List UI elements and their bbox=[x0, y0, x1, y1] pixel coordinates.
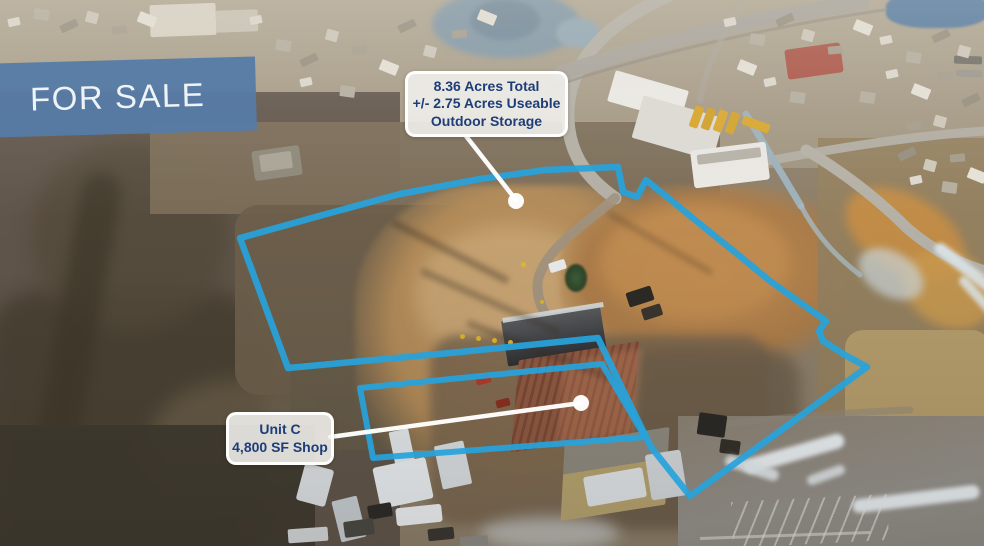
photo-blob bbox=[645, 449, 688, 500]
photo-blob bbox=[339, 85, 355, 98]
photo-blob bbox=[954, 56, 982, 65]
photo-blob bbox=[390, 219, 509, 284]
acreage-line2: +/- 2.75 Acres Useable bbox=[408, 95, 565, 112]
listing-marketing-image: FOR SALE 8.36 Acres Total +/- 2.75 Acres… bbox=[0, 0, 984, 546]
photo-blob bbox=[299, 53, 319, 68]
photo-blob bbox=[7, 17, 20, 27]
photo-blob bbox=[789, 91, 805, 104]
photo-blob bbox=[355, 185, 695, 495]
photo-blob bbox=[325, 29, 339, 43]
photo-blob bbox=[367, 502, 393, 520]
unit-c-outline bbox=[360, 364, 645, 458]
photo-blob bbox=[724, 454, 781, 483]
photo-blob bbox=[372, 457, 434, 509]
photo-blob bbox=[742, 432, 846, 475]
photo-blob bbox=[540, 300, 544, 304]
photo-blob bbox=[784, 42, 844, 80]
photo-blob bbox=[420, 268, 560, 335]
photo-blob bbox=[830, 169, 981, 300]
photo-blob bbox=[931, 29, 951, 44]
photo-blob bbox=[678, 416, 984, 546]
photo-blob bbox=[713, 109, 729, 133]
photo-blob bbox=[701, 107, 717, 131]
acreage-line3: Outdoor Storage bbox=[408, 113, 565, 130]
photo-blob bbox=[941, 181, 957, 194]
photo-blob bbox=[909, 175, 922, 185]
photo-blob bbox=[477, 9, 498, 26]
photo-blob bbox=[137, 11, 158, 28]
photo-blob bbox=[249, 15, 262, 25]
acreage-callout: 8.36 Acres Total +/- 2.75 Acres Useable … bbox=[405, 71, 568, 137]
photo-blob bbox=[828, 45, 844, 54]
photo-blob bbox=[427, 527, 454, 542]
photo-blob bbox=[607, 210, 714, 275]
photo-blob bbox=[251, 145, 303, 181]
for-sale-banner: FOR SALE bbox=[0, 56, 257, 137]
photo-blob bbox=[352, 45, 368, 54]
photo-blob bbox=[331, 495, 366, 542]
photo-blob bbox=[805, 463, 846, 486]
photo-blob bbox=[938, 71, 954, 80]
photo-blob bbox=[731, 494, 889, 546]
photo-blob bbox=[501, 305, 607, 366]
photo-blob bbox=[476, 336, 481, 341]
photo-blob bbox=[26, 169, 124, 511]
photo-blob bbox=[957, 274, 984, 328]
photo-blob bbox=[859, 91, 875, 104]
photo-blob bbox=[492, 338, 497, 343]
unit-c-callout: Unit C 4,800 SF Shop bbox=[226, 412, 334, 465]
photo-blob bbox=[885, 69, 898, 79]
photo-blob bbox=[932, 240, 984, 295]
photo-blob bbox=[502, 302, 604, 323]
photo-blob bbox=[905, 51, 921, 64]
photo-blob bbox=[737, 59, 758, 76]
acreage-line1: 8.36 Acres Total bbox=[408, 78, 565, 95]
photo-blob bbox=[560, 185, 860, 365]
photo-blob bbox=[85, 11, 99, 25]
photo-blob bbox=[0, 92, 400, 546]
photo-blob bbox=[149, 3, 216, 37]
photo-blob bbox=[343, 518, 375, 538]
photo-blob bbox=[763, 77, 776, 87]
photo-blob bbox=[508, 340, 513, 345]
photo-blob bbox=[775, 13, 795, 28]
photo-blob bbox=[967, 167, 984, 184]
photo-blob bbox=[388, 428, 415, 467]
photo-blob bbox=[480, 516, 620, 546]
photo-blob bbox=[956, 70, 982, 78]
photo-blob bbox=[723, 17, 736, 27]
photo-blob bbox=[296, 463, 335, 507]
photo-blob bbox=[557, 349, 643, 446]
photo-blob bbox=[957, 45, 971, 59]
photo-blob bbox=[548, 259, 567, 274]
unit-c-leader-dot bbox=[573, 395, 589, 411]
photo-blob bbox=[511, 341, 640, 452]
photo-blob bbox=[561, 427, 670, 521]
photo-blob bbox=[690, 142, 770, 189]
photo-blob bbox=[460, 334, 465, 339]
photo-blob bbox=[632, 95, 725, 160]
photo-blob bbox=[565, 264, 587, 292]
photo-blob bbox=[434, 440, 472, 489]
photo-blob bbox=[697, 147, 762, 165]
photo-blob bbox=[933, 115, 947, 129]
photo-blob bbox=[397, 19, 417, 34]
photo-blob bbox=[923, 159, 937, 173]
photo-blob bbox=[749, 33, 765, 46]
for-sale-label: FOR SALE bbox=[30, 76, 206, 119]
photo-blob bbox=[379, 59, 400, 76]
photo-blob bbox=[697, 412, 728, 438]
photo-blob bbox=[950, 153, 966, 162]
photo-blob bbox=[395, 504, 443, 527]
photo-blob bbox=[879, 35, 892, 45]
photo-blob bbox=[59, 19, 79, 34]
photo-blob bbox=[216, 9, 259, 32]
photo-blob bbox=[475, 373, 492, 385]
unit-c-line2: 4,800 SF Shop bbox=[229, 439, 331, 456]
photo-blob bbox=[30, 140, 230, 330]
photo-blob bbox=[897, 147, 917, 162]
photo-blob bbox=[719, 439, 741, 456]
photo-blob bbox=[911, 83, 932, 100]
photo-blob bbox=[906, 121, 922, 130]
photo-blob bbox=[852, 484, 981, 513]
photo-blob bbox=[886, 0, 984, 28]
photo-blob bbox=[275, 39, 291, 52]
photo-blob bbox=[725, 111, 741, 135]
photo-blob bbox=[607, 70, 689, 122]
photo-blob bbox=[299, 77, 312, 87]
photo-blob bbox=[700, 531, 870, 540]
photo-blob bbox=[641, 303, 664, 321]
photo-blob bbox=[961, 93, 981, 108]
photo-blob bbox=[423, 45, 437, 59]
photo-blob bbox=[741, 115, 770, 133]
photo-blob bbox=[590, 350, 800, 530]
photo-blob bbox=[521, 262, 526, 267]
photo-blob bbox=[430, 335, 770, 525]
photo-blob bbox=[460, 535, 489, 546]
photo-blob bbox=[288, 527, 329, 544]
property-boundary-outline bbox=[240, 167, 867, 496]
unit-c-leader-line bbox=[330, 403, 581, 437]
photo-blob bbox=[466, 320, 618, 384]
photo-blob bbox=[259, 151, 293, 172]
photo-blob bbox=[689, 105, 705, 129]
photo-blob bbox=[801, 29, 815, 43]
photo-blob bbox=[625, 285, 654, 307]
photo-blob bbox=[432, 0, 580, 58]
photo-blob bbox=[888, 233, 984, 345]
photo-blob bbox=[600, 205, 790, 320]
photo-blob bbox=[556, 18, 600, 48]
acreage-leader-line bbox=[466, 136, 516, 200]
photo-blob bbox=[495, 397, 511, 408]
photo-blob bbox=[415, 225, 605, 365]
photo-blob bbox=[850, 237, 933, 310]
photo-blob bbox=[235, 205, 515, 395]
photo-blob bbox=[845, 330, 984, 530]
unit-c-line1: Unit C bbox=[229, 421, 331, 438]
photo-blob bbox=[33, 8, 49, 21]
acreage-leader-dot bbox=[508, 193, 524, 209]
photo-blob bbox=[853, 19, 874, 36]
photo-blob bbox=[452, 29, 468, 38]
photo-blob bbox=[112, 25, 128, 34]
photo-blob bbox=[470, 0, 540, 40]
photo-blob bbox=[583, 467, 647, 507]
photo-blob bbox=[818, 138, 984, 546]
photo-blob bbox=[0, 290, 265, 546]
